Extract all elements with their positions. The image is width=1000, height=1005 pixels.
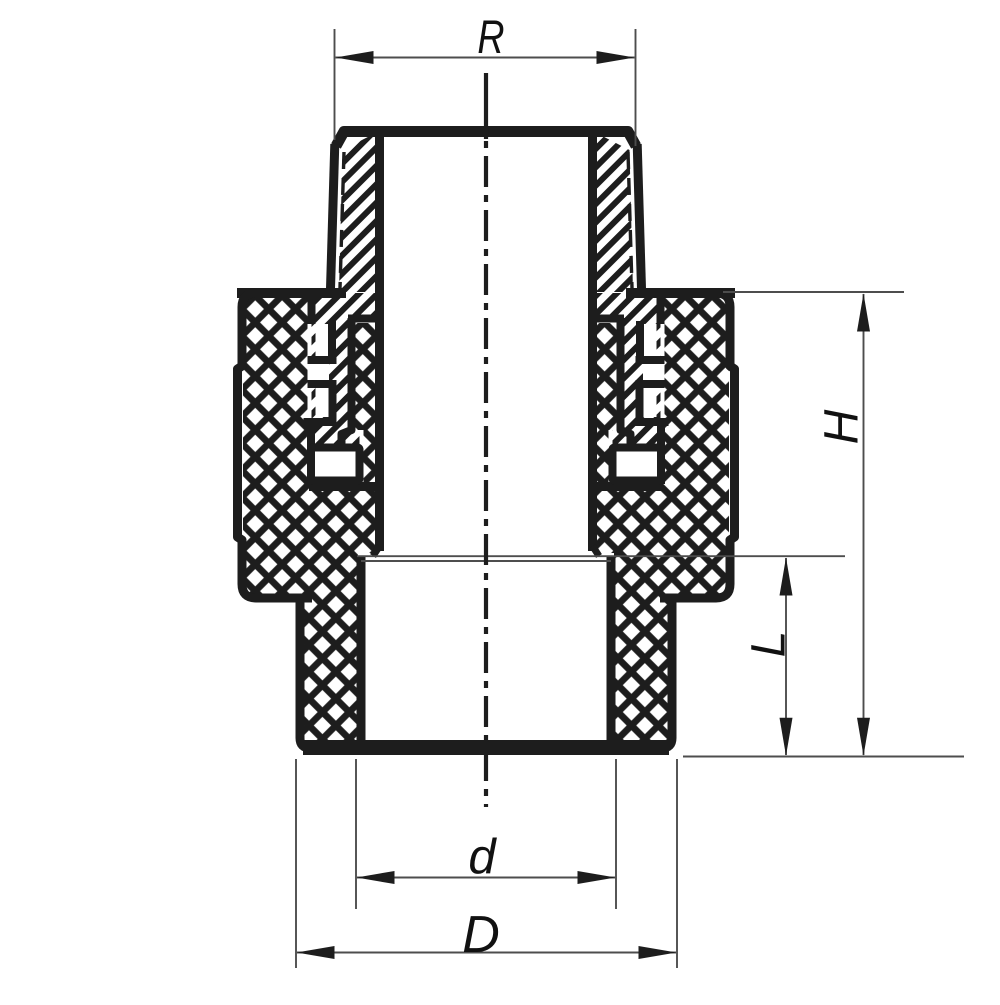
svg-text:L: L — [743, 631, 796, 658]
svg-text:H: H — [816, 409, 869, 444]
svg-text:d: d — [468, 830, 497, 884]
svg-text:R: R — [477, 11, 504, 64]
svg-text:D: D — [462, 906, 500, 964]
